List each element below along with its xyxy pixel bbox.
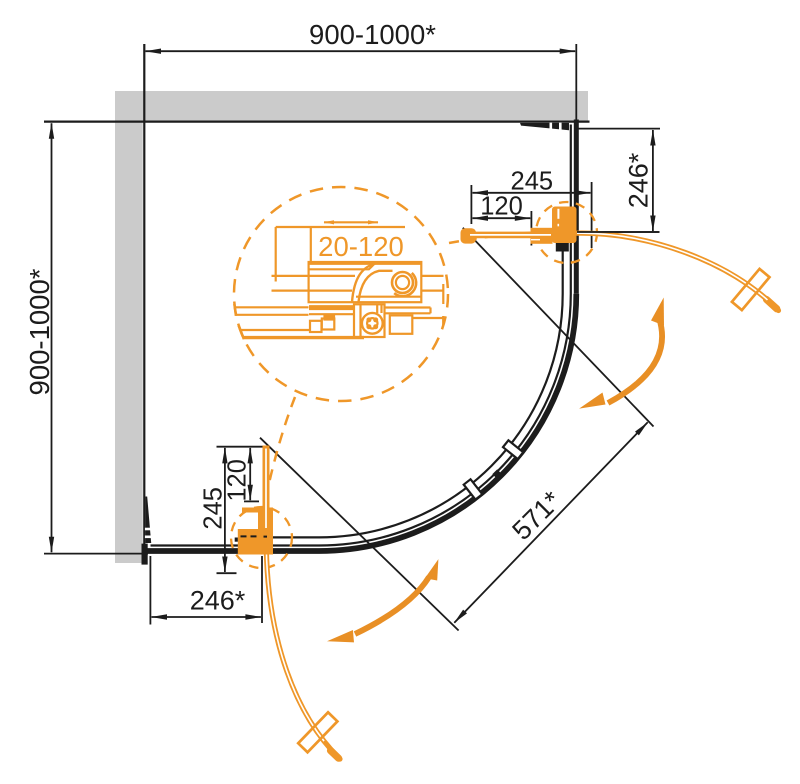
svg-text:900-1000*: 900-1000* [24,268,55,395]
svg-text:20-120: 20-120 [318,231,404,262]
svg-text:246*: 246* [190,585,246,615]
svg-text:120: 120 [480,193,523,221]
svg-text:900-1000*: 900-1000* [309,19,436,50]
svg-text:245: 245 [511,167,554,195]
svg-text:120: 120 [224,459,252,502]
svg-text:246*: 246* [624,152,654,208]
